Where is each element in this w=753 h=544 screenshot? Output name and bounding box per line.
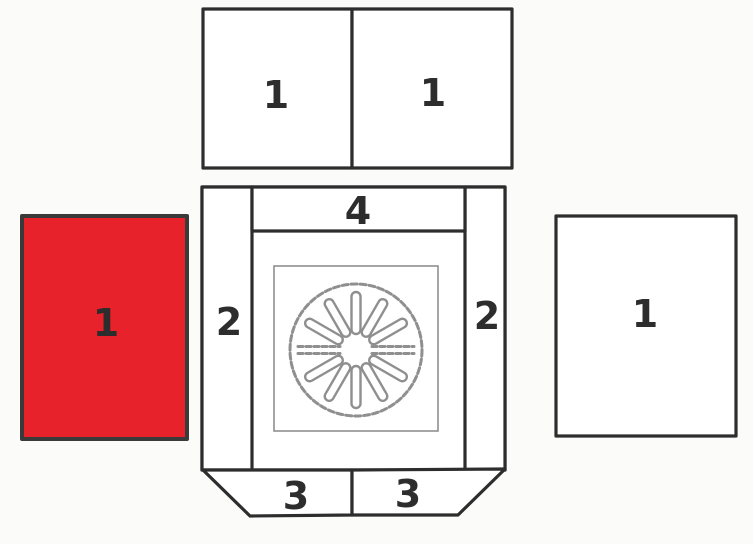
label-rear-plate: 4 <box>345 192 371 230</box>
bottom-brick-group <box>203 469 505 516</box>
parts-diagram-svg <box>0 0 753 544</box>
label-side-left: 2 <box>216 303 242 341</box>
label-left-brick: 1 <box>93 304 119 342</box>
label-bottom-left: 3 <box>283 477 309 515</box>
top-plate-group <box>203 9 512 168</box>
firebrick-parts-diagram: 1 1 1 1 2 2 4 3 3 <box>0 0 753 544</box>
bottom-brick-left-shape[interactable] <box>203 470 352 516</box>
label-top-plate-left: 1 <box>263 76 289 114</box>
label-top-plate-right: 1 <box>420 74 446 112</box>
label-side-right: 2 <box>474 297 500 335</box>
bottom-brick-right-shape[interactable] <box>352 469 505 515</box>
label-bottom-right: 3 <box>395 475 421 513</box>
label-right-brick: 1 <box>632 295 658 333</box>
